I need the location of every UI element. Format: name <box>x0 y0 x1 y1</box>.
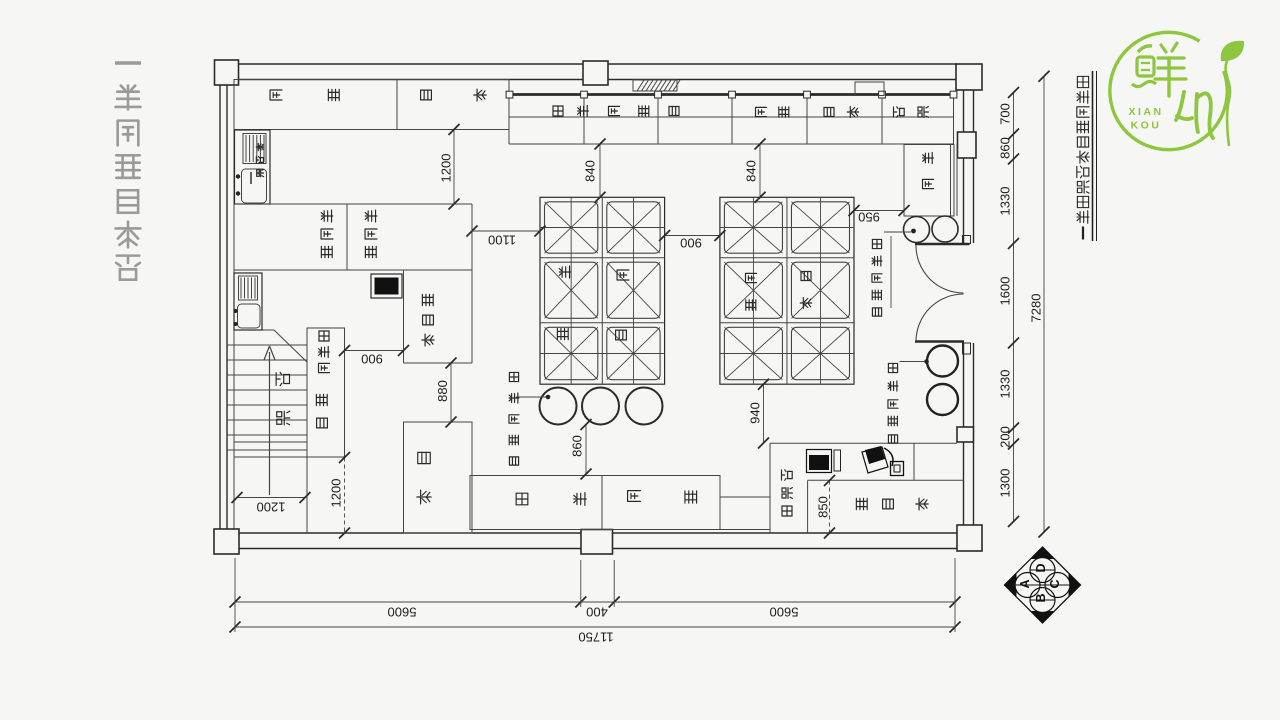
svg-text:1200: 1200 <box>257 500 286 515</box>
svg-text:1300: 1300 <box>997 469 1012 498</box>
svg-text:B: B <box>1034 593 1048 602</box>
svg-text:200: 200 <box>997 426 1012 448</box>
svg-text:880: 880 <box>435 380 450 402</box>
svg-text:D: D <box>1034 563 1048 572</box>
svg-text:1330: 1330 <box>997 187 1012 216</box>
svg-text:XIAN: XIAN <box>1128 106 1163 118</box>
svg-text:1330: 1330 <box>997 370 1012 399</box>
svg-text:1100: 1100 <box>488 233 516 248</box>
svg-text:11750: 11750 <box>578 630 613 645</box>
svg-text:400: 400 <box>586 605 608 620</box>
svg-text:1200: 1200 <box>328 479 343 508</box>
svg-text:5600: 5600 <box>770 605 799 620</box>
svg-text:5600: 5600 <box>388 605 417 620</box>
svg-text:940: 940 <box>747 402 762 424</box>
svg-text:840: 840 <box>743 160 758 182</box>
svg-text:700: 700 <box>997 103 1012 125</box>
svg-text:860: 860 <box>997 137 1012 159</box>
svg-text:900: 900 <box>361 352 383 367</box>
svg-text:1600: 1600 <box>997 277 1012 306</box>
svg-text:C: C <box>1048 579 1062 588</box>
svg-text:7280: 7280 <box>1028 294 1043 323</box>
svg-text:900: 900 <box>680 236 702 251</box>
svg-text:850: 850 <box>815 496 830 518</box>
svg-text:860: 860 <box>569 435 584 457</box>
svg-text:950: 950 <box>858 210 880 225</box>
svg-text:A: A <box>1018 579 1032 588</box>
svg-text:KOU: KOU <box>1131 120 1162 132</box>
svg-text:1200: 1200 <box>438 154 453 183</box>
svg-text:840: 840 <box>582 160 597 182</box>
